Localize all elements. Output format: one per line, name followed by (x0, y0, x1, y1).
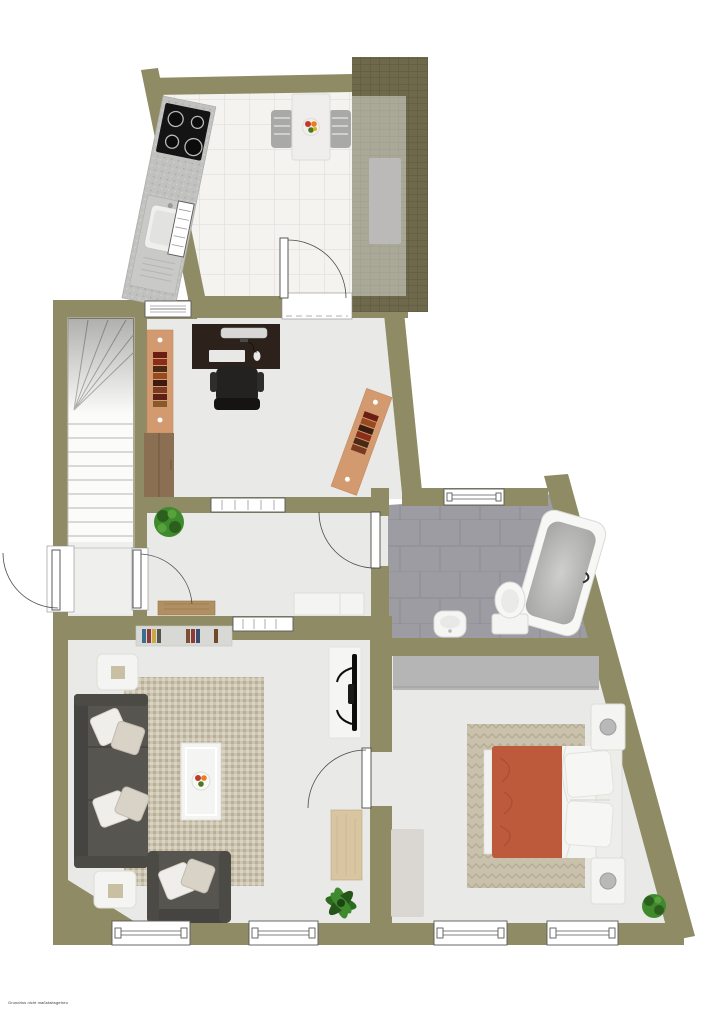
floor-plan-canvas: Grundriss nicht maßstabsgetreu (0, 0, 724, 1024)
terrace-glass-overlay (352, 96, 406, 296)
bedroom-window-2 (547, 921, 618, 945)
side-rug (391, 829, 424, 917)
dining-chair-right (329, 110, 351, 148)
dining-chair-left (271, 110, 293, 148)
floor-plan-svg (0, 0, 724, 1024)
office-top-window (145, 301, 191, 317)
nightstand-top (591, 704, 625, 750)
pillow-top (564, 750, 614, 798)
wall-shelf-books (136, 626, 232, 646)
office-chair (210, 366, 264, 410)
wardrobe (393, 656, 599, 690)
wood-side-table (331, 810, 362, 880)
double-bed (484, 746, 622, 858)
hall-bottom-window (233, 617, 293, 631)
nightstand-bottom (591, 858, 625, 904)
pillow-bottom (565, 800, 614, 847)
wall-bathroom-bottom (381, 638, 609, 656)
fine-print: Grundriss nicht maßstabsgetreu (8, 1000, 68, 1005)
duvet (492, 746, 568, 858)
bedroom-window-1 (434, 921, 507, 945)
wood-bench (158, 601, 215, 615)
armchair (147, 851, 231, 923)
side-table-bottom (94, 871, 136, 908)
bathroom-window (444, 489, 504, 505)
front-door (3, 546, 74, 612)
wall-kitchen-bottom-left (188, 296, 284, 318)
keyboard (209, 350, 245, 362)
monitor (221, 328, 267, 338)
toilet (492, 582, 528, 634)
hall-top-window (211, 498, 285, 512)
coffee-tray (181, 743, 221, 820)
bedroom-plant (642, 894, 666, 918)
monitor-stand (240, 338, 248, 342)
tv-panel (329, 647, 361, 738)
bidet-sink (434, 611, 466, 637)
stair-shadow (68, 318, 134, 414)
terrace (352, 57, 428, 312)
wall-kitchen-top (146, 74, 353, 95)
sectional-sofa (74, 694, 150, 868)
fruit-bowl-kitchen (303, 119, 320, 136)
living-window-2 (249, 921, 318, 945)
living-window-1 (112, 921, 190, 945)
mouse (254, 351, 261, 361)
hall-plant (154, 507, 184, 537)
tv-mount (348, 684, 354, 704)
bookshelf-left (147, 330, 173, 433)
vestibule-floor (65, 542, 134, 618)
side-table-top (97, 654, 138, 690)
wall-livingbed-lower (370, 806, 392, 928)
sideboard (294, 593, 364, 615)
footboard (484, 750, 492, 854)
cooktop (156, 103, 211, 161)
wall-livingbed-upper (370, 616, 392, 752)
